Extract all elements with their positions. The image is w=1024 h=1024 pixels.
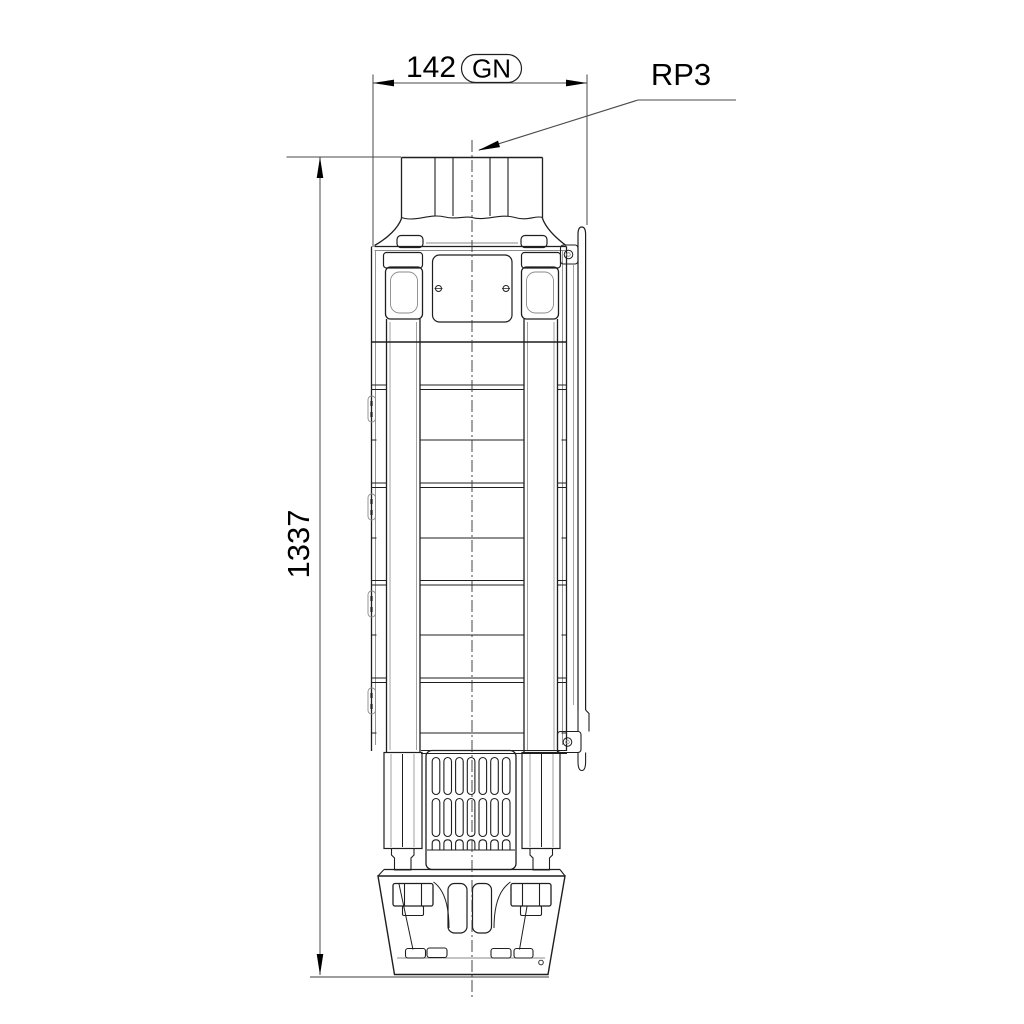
cable-clamp-left — [384, 236, 424, 320]
length-arrow-top — [317, 157, 324, 178]
drain-hole — [539, 960, 544, 965]
connection-leader-line — [479, 100, 736, 150]
stud-left — [384, 753, 422, 871]
bracket-outline — [378, 876, 565, 975]
dimension-length: 1337 — [281, 157, 549, 977]
pump-drawing — [368, 140, 589, 998]
width-extension-lines — [373, 75, 587, 248]
dimension-width: 142 GN — [373, 51, 587, 247]
callout-connection: RP3 — [478, 57, 736, 151]
drawing-canvas: 142 GN 1337 RP3 — [0, 0, 1024, 1024]
length-arrow-bottom — [317, 954, 324, 975]
motor-bracket — [378, 870, 565, 975]
strainer-slots — [432, 758, 510, 851]
stud-right — [522, 753, 560, 871]
width-dimension-value: 142 — [406, 51, 456, 84]
length-dimension-value: 1337 — [281, 510, 316, 579]
width-arrow-right — [566, 80, 587, 87]
cable-guard-strip — [578, 227, 586, 710]
connection-size-label: RP3 — [651, 57, 711, 92]
width-arrow-left — [373, 80, 394, 87]
discharge-thread — [375, 158, 567, 246]
connection-leader-arrow — [478, 141, 500, 151]
width-code-label: GN — [472, 54, 511, 84]
leg-window-left — [448, 884, 467, 934]
cable-guard-clamp-top — [561, 245, 579, 264]
hex-nut-right — [511, 884, 551, 916]
discharge-shoulder — [375, 219, 567, 246]
leg-window-right — [473, 884, 492, 934]
bracket-feet — [406, 948, 534, 958]
cable-guard-end-hook — [578, 753, 586, 771]
top-casing — [375, 236, 567, 323]
cable-clamp-right — [521, 236, 561, 320]
hex-nut-left — [393, 884, 433, 916]
pump-technical-drawing: 142 GN 1337 RP3 — [0, 0, 1024, 1024]
